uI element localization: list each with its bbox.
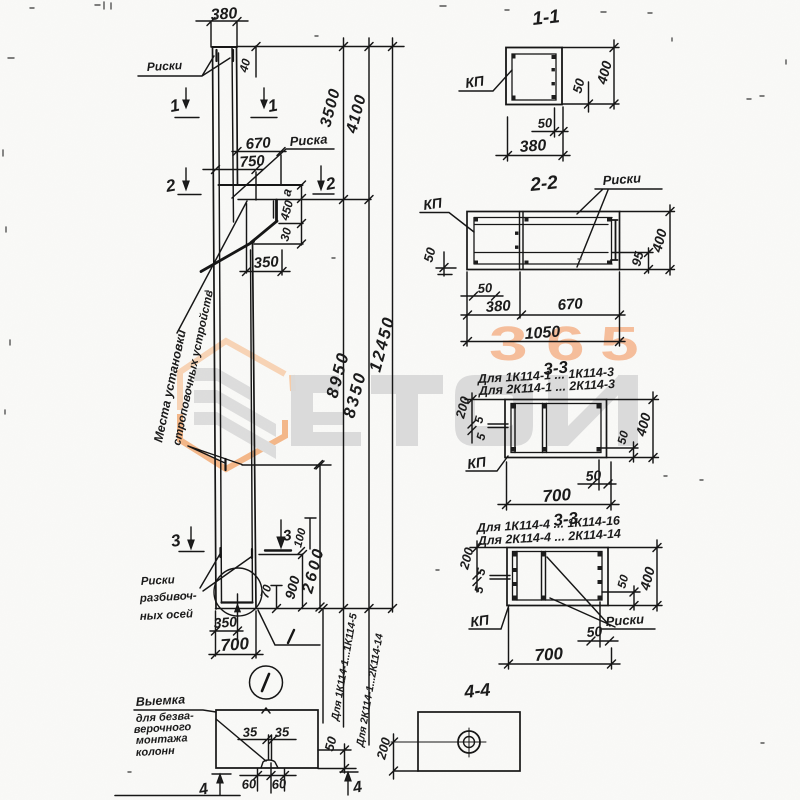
svg-text:380: 380 [519, 137, 547, 156]
svg-text:50: 50 [537, 115, 553, 131]
svg-text:КП: КП [466, 453, 488, 472]
svg-text:3: 3 [489, 317, 528, 371]
svg-text:670: 670 [245, 134, 272, 153]
svg-text:380: 380 [485, 297, 512, 316]
svg-text:Риски: Риски [141, 574, 176, 588]
svg-text:2-2: 2-2 [528, 172, 559, 196]
svg-text:350: 350 [213, 613, 238, 631]
svg-text:Риски: Риски [146, 58, 183, 74]
svg-text:750: 750 [239, 152, 266, 171]
svg-text:700: 700 [220, 634, 250, 655]
svg-text:1050: 1050 [524, 324, 561, 343]
svg-text:Риски: Риски [605, 611, 644, 629]
svg-text:670: 670 [557, 295, 584, 314]
svg-text:КП: КП [469, 611, 491, 630]
svg-text:КП: КП [422, 194, 444, 213]
svg-text:колонн: колонн [136, 745, 176, 759]
svg-text:35: 35 [242, 724, 258, 740]
svg-text:1-1: 1-1 [531, 6, 561, 30]
svg-text:350: 350 [253, 253, 280, 272]
svg-text:50: 50 [586, 623, 603, 640]
svg-text:Риска: Риска [289, 131, 328, 149]
svg-text:50: 50 [585, 467, 602, 484]
svg-text:700: 700 [542, 485, 572, 506]
svg-text:4-4: 4-4 [462, 679, 491, 702]
svg-text:50: 50 [477, 280, 493, 296]
svg-text:60: 60 [271, 776, 287, 792]
svg-text:380: 380 [210, 5, 238, 24]
svg-text:60: 60 [241, 776, 257, 792]
svg-text:35: 35 [274, 724, 290, 740]
svg-text:Риски: Риски [602, 170, 641, 188]
svg-text:700: 700 [534, 644, 564, 665]
svg-text:КП: КП [464, 72, 486, 91]
svg-text:Выемка: Выемка [135, 692, 185, 709]
